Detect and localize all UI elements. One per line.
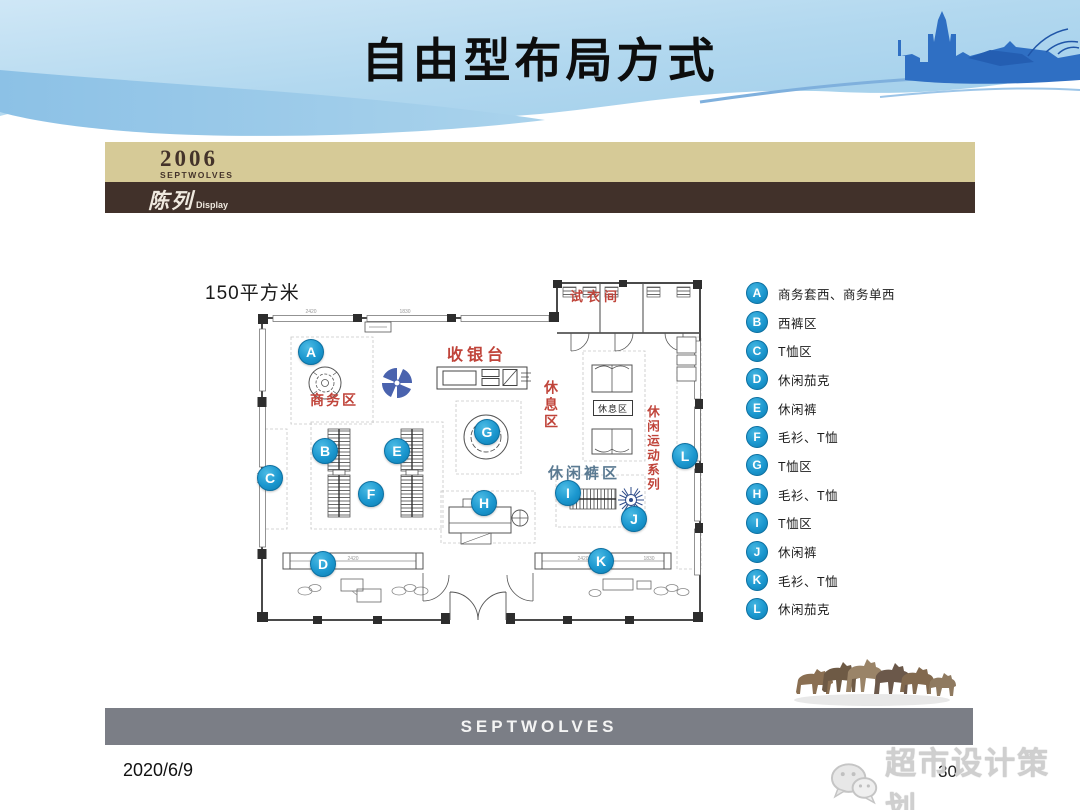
legend-item-C: CT恤区 bbox=[746, 336, 976, 365]
legend-badge-D: D bbox=[746, 368, 768, 390]
legend-item-K: K毛衫、T恤 bbox=[746, 566, 976, 595]
section-title-cn: 陈列 bbox=[148, 190, 194, 213]
svg-text:2420: 2420 bbox=[305, 309, 316, 315]
legend-label-I: T恤区 bbox=[778, 513, 812, 532]
page-title: 自由型布局方式 bbox=[0, 22, 1080, 91]
legend-label-L: 休闲茄克 bbox=[778, 599, 830, 618]
plan-marker-I: I bbox=[555, 480, 581, 506]
plan-marker-A: A bbox=[298, 339, 324, 365]
cashier-counter bbox=[437, 367, 531, 389]
legend-label-D: 休闲茄克 bbox=[778, 370, 830, 389]
plan-marker-D: D bbox=[310, 551, 336, 577]
legend-item-A: A商务套西、商务单西 bbox=[746, 279, 976, 308]
plan-marker-E: E bbox=[384, 438, 410, 464]
legend-item-J: J休闲裤 bbox=[746, 537, 976, 566]
legend-badge-C: C bbox=[746, 340, 768, 362]
floor-plan: 2420 1830 2420 2420 1830 收银台 商务区 试衣间 休息区… bbox=[253, 279, 708, 624]
legend-label-F: 毛衫、T恤 bbox=[778, 427, 838, 446]
legend-badge-G: G bbox=[746, 454, 768, 476]
plan-marker-B: B bbox=[312, 438, 338, 464]
legend-badge-A: A bbox=[746, 282, 768, 304]
legend-label-E: 休闲裤 bbox=[778, 399, 817, 418]
section-label: 陈列Display bbox=[148, 185, 228, 215]
zone-label-business: 商务区 bbox=[310, 390, 358, 410]
plan-marker-C: C bbox=[257, 465, 283, 491]
section-title-en: Display bbox=[196, 200, 228, 210]
legend-item-L: L休闲茄克 bbox=[746, 595, 976, 624]
legend-item-H: H毛衫、T恤 bbox=[746, 480, 976, 509]
section-band-brown: 陈列Display bbox=[105, 182, 975, 213]
brand-year: 2006 bbox=[160, 147, 233, 170]
legend-badge-J: J bbox=[746, 541, 768, 563]
wolves-image bbox=[788, 650, 956, 708]
legend-badge-K: K bbox=[746, 569, 768, 591]
legend-list: A商务套西、商务单西B西裤区CT恤区D休闲茄克E休闲裤F毛衫、T恤GT恤区H毛衫… bbox=[746, 279, 976, 623]
zone-label-cashier: 收银台 bbox=[447, 341, 507, 365]
plan-marker-K: K bbox=[588, 548, 614, 574]
legend-badge-H: H bbox=[746, 483, 768, 505]
legend-label-J: 休闲裤 bbox=[778, 542, 817, 561]
legend-item-E: E休闲裤 bbox=[746, 394, 976, 423]
footer-logo: SEPTWOLVES bbox=[461, 717, 618, 737]
plan-marker-J: J bbox=[621, 506, 647, 532]
legend-badge-L: L bbox=[746, 598, 768, 620]
brand-band-tan: 2006 SEPTWOLVES bbox=[105, 142, 975, 182]
plan-marker-L: L bbox=[672, 443, 698, 469]
top-wall-fixture bbox=[365, 322, 391, 332]
legend-label-G: T恤区 bbox=[778, 456, 812, 475]
legend-item-G: GT恤区 bbox=[746, 451, 976, 480]
slide-date: 2020/6/9 bbox=[123, 760, 193, 781]
legend-label-B: 西裤区 bbox=[778, 313, 817, 332]
legend-item-B: B西裤区 bbox=[746, 308, 976, 337]
legend-item-D: D休闲茄克 bbox=[746, 365, 976, 394]
svg-text:1830: 1830 bbox=[643, 556, 654, 562]
wolf-silhouettes bbox=[788, 650, 956, 696]
rest-area-box-label: 休息区 bbox=[593, 400, 633, 416]
legend-label-H: 毛衫、T恤 bbox=[778, 485, 838, 504]
legend-label-A: 商务套西、商务单西 bbox=[778, 284, 895, 303]
legend-label-K: 毛衫、T恤 bbox=[778, 571, 838, 590]
legend-item-F: F毛衫、T恤 bbox=[746, 422, 976, 451]
zone-label-casual-sports: 休闲运动系列 bbox=[643, 405, 662, 492]
brand-name: SEPTWOLVES bbox=[160, 171, 233, 180]
legend-badge-I: I bbox=[746, 512, 768, 534]
plan-marker-G: G bbox=[474, 419, 500, 445]
wechat-icon bbox=[828, 760, 879, 806]
slide: 自由型布局方式 2006 SEPTWOLVES 陈列Display 150平方米 bbox=[0, 0, 1080, 810]
svg-text:1830: 1830 bbox=[399, 309, 410, 315]
plan-marker-H: H bbox=[471, 490, 497, 516]
zone-label-casual-pants: 休闲裤区 bbox=[548, 462, 620, 483]
zone-label-rest-area: 休息区 bbox=[541, 380, 561, 431]
svg-text:2420: 2420 bbox=[347, 556, 358, 562]
pinwheel-display-upper bbox=[382, 368, 412, 398]
watermark: 超市设计策划 bbox=[828, 738, 1080, 810]
legend-badge-F: F bbox=[746, 426, 768, 448]
bottom-display-props bbox=[298, 573, 689, 602]
legend-item-I: IT恤区 bbox=[746, 509, 976, 538]
legend-label-C: T恤区 bbox=[778, 341, 812, 360]
brand-logo: 2006 SEPTWOLVES bbox=[160, 147, 233, 180]
legend-badge-E: E bbox=[746, 397, 768, 419]
zone-label-fitting-room: 试衣间 bbox=[570, 286, 621, 305]
legend-badge-B: B bbox=[746, 311, 768, 333]
watermark-text: 超市设计策划 bbox=[885, 738, 1080, 810]
plan-marker-F: F bbox=[358, 481, 384, 507]
